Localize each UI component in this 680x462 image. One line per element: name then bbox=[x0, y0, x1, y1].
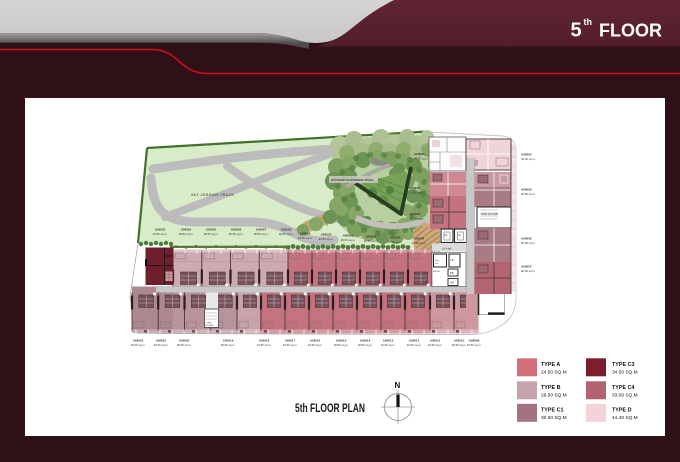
svg-text:A00502: A00502 bbox=[409, 186, 420, 190]
svg-text:A00523: A00523 bbox=[155, 228, 166, 232]
svg-text:28.50 sq.m.: 28.50 sq.m. bbox=[229, 232, 244, 236]
svg-text:A00531: A00531 bbox=[343, 234, 354, 238]
svg-text:OUTDOOR CO-WORKING SPACE: OUTDOOR CO-WORKING SPACE bbox=[331, 178, 374, 182]
svg-text:A00511: A00511 bbox=[430, 339, 441, 343]
svg-text:EA Hall: EA Hall bbox=[433, 270, 441, 273]
svg-text:30.50 sq.m.: 30.50 sq.m. bbox=[521, 241, 536, 245]
svg-text:24.50 sq.m.: 24.50 sq.m. bbox=[410, 217, 425, 221]
svg-text:A00503: A00503 bbox=[414, 152, 425, 156]
svg-text:26.50 sq.m.: 26.50 sq.m. bbox=[341, 238, 356, 242]
svg-text:26.50 sq.m.: 26.50 sq.m. bbox=[334, 343, 349, 347]
svg-text:A00522: A00522 bbox=[133, 339, 144, 343]
svg-text:30.50 sq.m.: 30.50 sq.m. bbox=[521, 192, 536, 196]
svg-text:Lift: Lift bbox=[435, 262, 438, 265]
svg-text:24.50 sq.m.: 24.50 sq.m. bbox=[257, 343, 272, 347]
svg-text:44.00 sq.m.: 44.00 sq.m. bbox=[414, 157, 429, 161]
svg-text:24.50 sq.m.: 24.50 sq.m. bbox=[412, 241, 427, 245]
svg-text:A00512: A00512 bbox=[409, 339, 420, 343]
svg-text:28.50 sq.m.: 28.50 sq.m. bbox=[221, 343, 236, 347]
svg-text:A00534: A00534 bbox=[414, 237, 425, 241]
svg-text:24.50 sq.m.: 24.50 sq.m. bbox=[153, 232, 168, 236]
svg-text:TYPE B: TYPE B bbox=[541, 385, 561, 391]
svg-text:30.50 SQ.M: 30.50 SQ.M bbox=[541, 415, 567, 421]
svg-text:th: th bbox=[584, 17, 593, 27]
svg-text:Lift Hall: Lift Hall bbox=[442, 247, 452, 251]
svg-text:A00505: A00505 bbox=[521, 188, 532, 192]
svg-text:30.50 sq.m.: 30.50 sq.m. bbox=[521, 269, 536, 273]
svg-text:A00521: A00521 bbox=[156, 339, 167, 343]
svg-text:A00524: A00524 bbox=[181, 228, 192, 232]
svg-text:24.50 sq.m.: 24.50 sq.m. bbox=[388, 240, 403, 244]
svg-text:30.00 sq.m.: 30.00 sq.m. bbox=[131, 343, 146, 347]
svg-text:28.50 sq.m.: 28.50 sq.m. bbox=[254, 232, 269, 236]
svg-text:A00520: A00520 bbox=[179, 339, 190, 343]
svg-text:A00530: A00530 bbox=[321, 233, 332, 237]
svg-text:34.50 SQ.M: 34.50 SQ.M bbox=[612, 369, 638, 375]
svg-text:A00533: A00533 bbox=[390, 236, 401, 240]
svg-text:24.50 sq.m.: 24.50 sq.m. bbox=[283, 343, 298, 347]
svg-text:24.50 SQ.M: 24.50 SQ.M bbox=[541, 369, 567, 375]
svg-text:24.50 sq.m.: 24.50 sq.m. bbox=[381, 343, 396, 347]
svg-text:TYPE C1: TYPE C1 bbox=[541, 407, 563, 413]
svg-text:A00506: A00506 bbox=[521, 237, 532, 241]
svg-text:TYPE C3: TYPE C3 bbox=[612, 362, 634, 368]
svg-text:Lift: Lift bbox=[458, 234, 462, 237]
svg-text:24.50 sq.m.: 24.50 sq.m. bbox=[308, 343, 323, 347]
svg-text:TYPE D: TYPE D bbox=[612, 407, 632, 413]
svg-text:Lift: Lift bbox=[451, 259, 455, 262]
svg-text:44.40 SQ.M: 44.40 SQ.M bbox=[612, 415, 638, 421]
svg-text:A00514: A00514 bbox=[360, 339, 371, 343]
svg-text:ESCAPE: ESCAPE bbox=[206, 324, 215, 327]
svg-text:N: N bbox=[395, 381, 401, 390]
svg-text:A00529: A00529 bbox=[300, 232, 311, 236]
svg-text:31.50 sq.m.: 31.50 sq.m. bbox=[409, 191, 424, 195]
svg-text:28.50 SQ.M: 28.50 SQ.M bbox=[541, 392, 567, 398]
svg-text:24.50 sq.m.: 24.50 sq.m. bbox=[298, 236, 313, 240]
svg-text:26.50 sq.m.: 26.50 sq.m. bbox=[364, 239, 379, 243]
svg-text:28.50 sq.m.: 28.50 sq.m. bbox=[358, 343, 373, 347]
svg-text:5th FLOOR PLAN: 5th FLOOR PLAN bbox=[295, 401, 365, 415]
svg-text:24.50 sq.m.: 24.50 sq.m. bbox=[319, 237, 334, 241]
svg-text:A00519: A00519 bbox=[223, 339, 234, 343]
svg-text:A00513: A00513 bbox=[383, 339, 394, 343]
svg-text:A00517: A00517 bbox=[285, 339, 296, 343]
svg-text:A00501: A00501 bbox=[410, 212, 421, 216]
svg-text:A00525: A00525 bbox=[206, 228, 217, 232]
svg-text:26.50 sq.m.: 26.50 sq.m. bbox=[467, 343, 482, 347]
svg-text:28.50 sq.m.: 28.50 sq.m. bbox=[177, 343, 192, 347]
svg-text:A00507: A00507 bbox=[521, 265, 532, 269]
svg-text:Lift: Lift bbox=[444, 234, 448, 237]
svg-text:GB: GB bbox=[450, 281, 454, 285]
svg-text:A00510: A00510 bbox=[454, 339, 465, 343]
svg-text:26.50 sq.m.: 26.50 sq.m. bbox=[154, 343, 169, 347]
svg-text:A00504: A00504 bbox=[521, 153, 532, 157]
svg-text:A00516: A00516 bbox=[310, 339, 321, 343]
svg-text:A00527: A00527 bbox=[256, 228, 267, 232]
svg-text:EB: EB bbox=[450, 271, 454, 275]
svg-text:24.50 sq.m.: 24.50 sq.m. bbox=[407, 343, 422, 347]
svg-text:FLOOR: FLOOR bbox=[599, 20, 662, 41]
svg-text:TYPE A: TYPE A bbox=[541, 362, 560, 368]
svg-text:FIRE ESCAPE: FIRE ESCAPE bbox=[481, 212, 498, 216]
svg-text:24.50 sq.m.: 24.50 sq.m. bbox=[428, 343, 443, 347]
svg-text:A00528: A00528 bbox=[281, 228, 292, 232]
svg-text:SKY JOGGING TRACK: SKY JOGGING TRACK bbox=[191, 193, 234, 197]
svg-text:28.50 sq.m.: 28.50 sq.m. bbox=[279, 232, 294, 236]
svg-text:A00526: A00526 bbox=[231, 228, 242, 232]
svg-text:33.00 SQ.M: 33.00 SQ.M bbox=[612, 392, 638, 398]
svg-text:28.50 sq.m.: 28.50 sq.m. bbox=[179, 232, 194, 236]
svg-text:28.50 sq.m.: 28.50 sq.m. bbox=[204, 232, 219, 236]
svg-text:A00515: A00515 bbox=[336, 339, 347, 343]
svg-text:5: 5 bbox=[571, 20, 582, 42]
svg-text:TYPE C4: TYPE C4 bbox=[612, 385, 634, 391]
svg-text:A00518: A00518 bbox=[259, 339, 270, 343]
svg-text:A00532: A00532 bbox=[366, 235, 377, 239]
svg-text:28.50 sq.m.: 28.50 sq.m. bbox=[452, 343, 467, 347]
svg-text:44.00 sq.m.: 44.00 sq.m. bbox=[521, 157, 536, 161]
svg-text:A00509: A00509 bbox=[469, 339, 480, 343]
